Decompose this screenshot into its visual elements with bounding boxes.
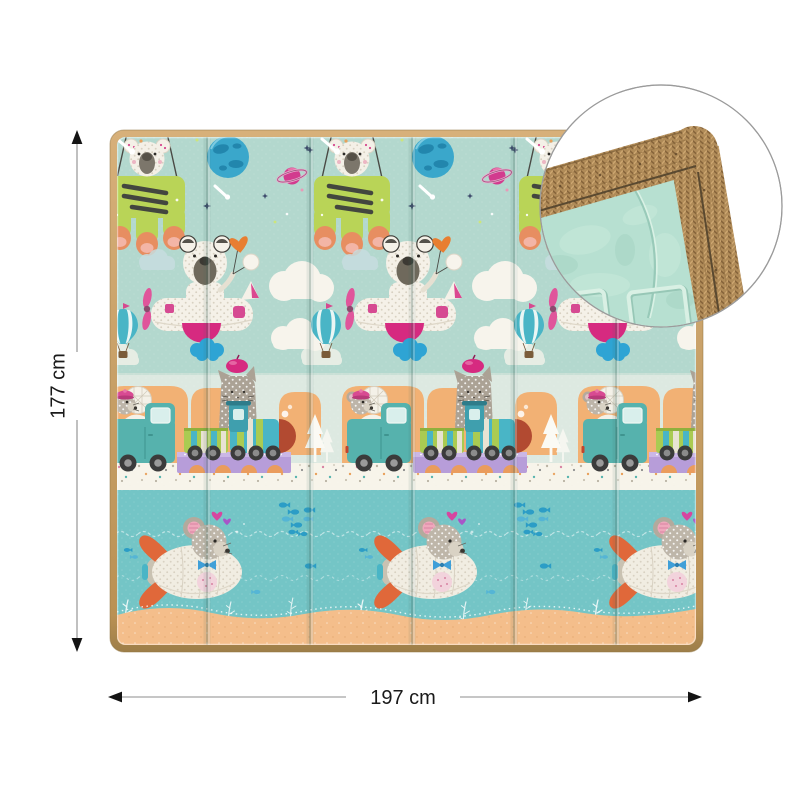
- height-dimension: 177 cm: [47, 130, 82, 652]
- height-dimension-label: 177 cm: [47, 353, 69, 419]
- play-mat-dimension-illustration: 177 cm 197 cm: [0, 0, 800, 800]
- product-image: 177 cm 197 cm: [0, 0, 800, 800]
- arrow-left-icon: [108, 692, 122, 703]
- width-dimension-label: 197 cm: [370, 687, 436, 709]
- arrow-down-icon: [72, 638, 83, 652]
- width-dimension: 197 cm: [108, 687, 702, 709]
- arrow-up-icon: [72, 130, 83, 144]
- mouse-truck-motif: [106, 386, 188, 472]
- arrow-right-icon: [688, 692, 702, 703]
